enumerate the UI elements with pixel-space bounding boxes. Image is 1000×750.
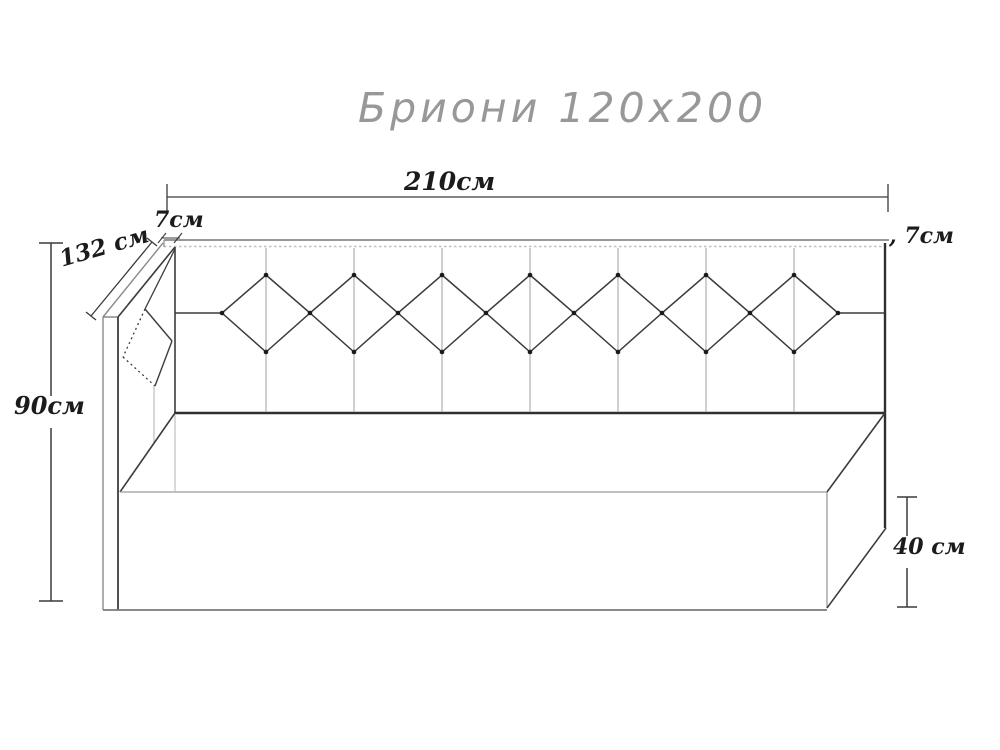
dim-line-210 (167, 184, 888, 212)
headboard-diamond-pattern (175, 248, 885, 412)
bed-base (103, 413, 886, 610)
dim-label-total-width: 210см (404, 169, 495, 194)
dim-label-base-height: 40 см (893, 536, 966, 558)
drawing-title: Бриони 120x200 (358, 88, 767, 129)
dim-line-90 (39, 243, 63, 601)
dim-label-left-thickness: 7см (154, 209, 204, 231)
dim-label-right-thickness: , 7см (889, 225, 954, 247)
dim-label-total-height: 90см (14, 394, 85, 418)
dim-line-7-left (158, 233, 182, 243)
dimension-lines (39, 184, 917, 607)
furniture-drawing: Бриони 120x200 210см 7см , 7см 132 см 90… (0, 0, 1000, 750)
side-panel (103, 243, 175, 610)
headboard-top-band (164, 240, 889, 247)
